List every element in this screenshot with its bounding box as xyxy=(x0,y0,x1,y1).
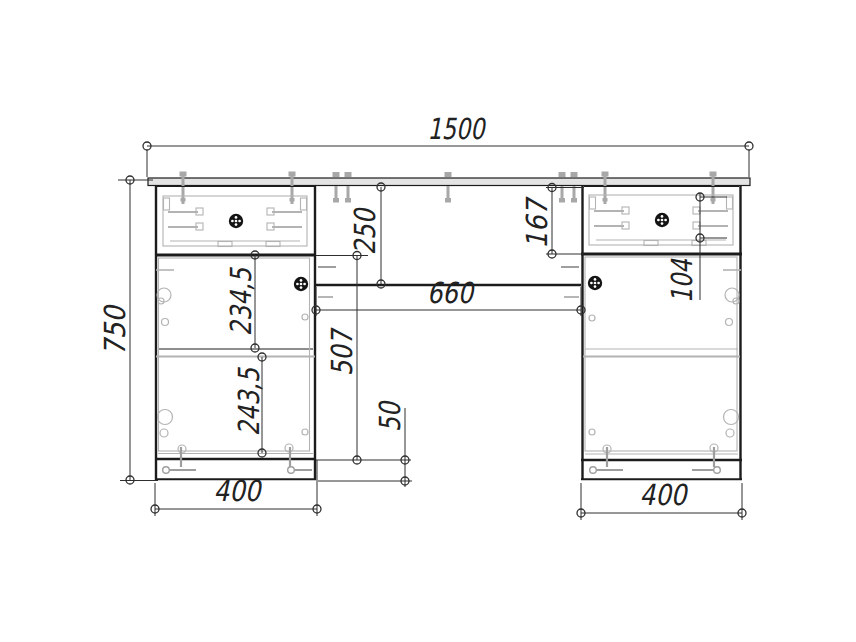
dim-left-shelf-upper: 234,5 xyxy=(224,251,259,352)
dim-label-400-right: 400 xyxy=(640,478,689,512)
right-door-knob-icon xyxy=(588,276,602,290)
right-drawer-knob-icon xyxy=(655,213,669,227)
dim-label-1500: 1500 xyxy=(428,112,487,146)
right-side-dowels xyxy=(561,267,579,297)
dim-label-243-5: 243,5 xyxy=(232,367,266,436)
dim-right-drawer-box-height: 104 xyxy=(665,193,727,303)
dim-right-pedestal-width: 400 xyxy=(577,478,746,520)
dim-label-50: 50 xyxy=(373,400,407,432)
drawing-canvas: 1500 750 250 167 104 660 xyxy=(0,0,856,642)
dim-label-400-left: 400 xyxy=(214,474,263,508)
right-door-outline xyxy=(585,257,737,451)
left-door-knob-icon xyxy=(294,277,308,291)
dim-label-750: 750 xyxy=(98,304,132,356)
left-drawer-knob-icon xyxy=(229,214,243,228)
dim-left-pedestal-width: 400 xyxy=(151,460,321,516)
desktop-screws xyxy=(180,172,717,205)
dim-label-660: 660 xyxy=(427,276,475,310)
dim-label-234-5: 234,5 xyxy=(224,267,258,336)
dim-label-250: 250 xyxy=(348,207,382,255)
dim-label-167: 167 xyxy=(520,196,554,249)
desktop xyxy=(148,178,750,186)
dim-label-104: 104 xyxy=(665,258,699,303)
dim-overall-height: 750 xyxy=(98,176,158,484)
right-pedestal xyxy=(561,185,742,480)
technical-drawing: 1500 750 250 167 104 660 xyxy=(0,0,856,642)
left-side-dowels xyxy=(318,267,336,297)
dim-overall-width: 1500 xyxy=(143,112,753,177)
dim-label-507: 507 xyxy=(325,327,359,376)
dim-plinth-height: 50 xyxy=(318,400,412,487)
dim-middle-panel-height: 250 xyxy=(348,183,385,288)
dim-knee-space-width: 660 xyxy=(312,276,585,316)
dim-left-shelf-lower: 243,5 xyxy=(232,353,266,457)
